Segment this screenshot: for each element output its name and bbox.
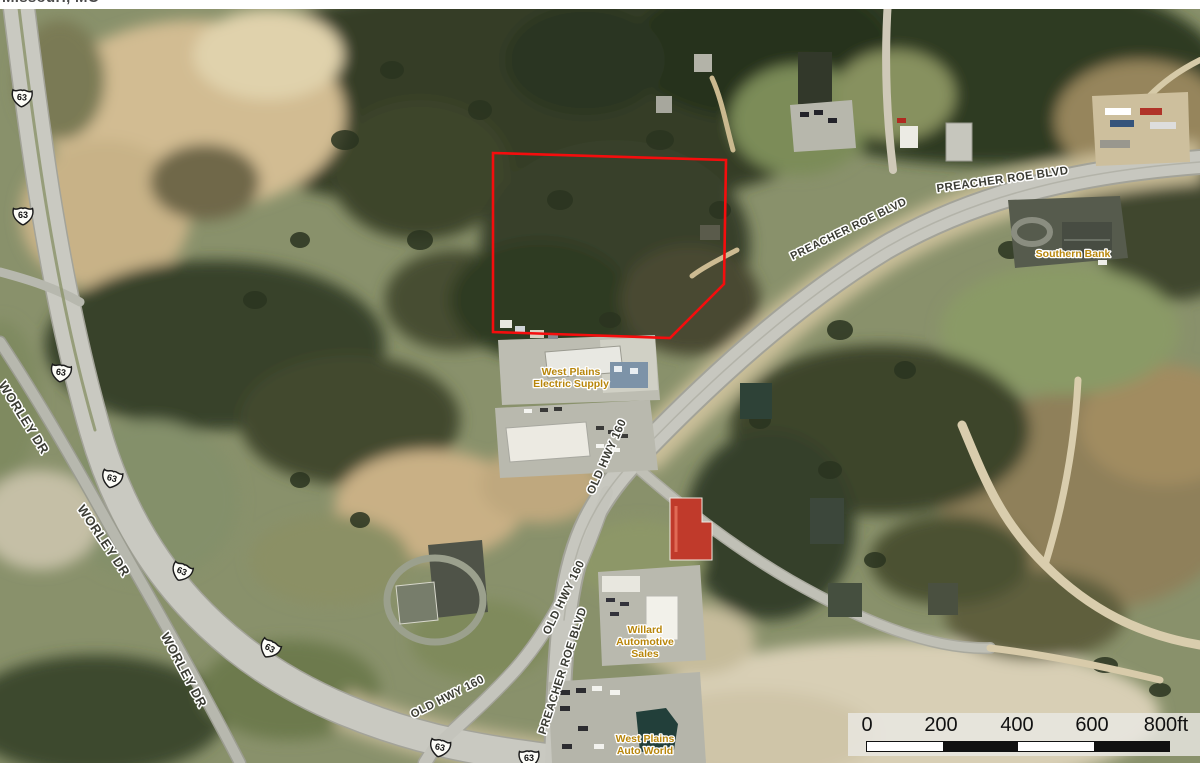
svg-text:63: 63 [17, 92, 28, 103]
house-roof [798, 52, 832, 104]
warehouse-building [506, 422, 590, 462]
scale-bar-segment [867, 742, 943, 751]
scale-tick: 600 [1075, 714, 1108, 737]
cropped-header-text: Missouri, MO [0, 0, 1200, 9]
svg-text:63: 63 [434, 741, 446, 753]
scale-tick: 0 [861, 714, 872, 737]
church-building [396, 582, 438, 624]
location-text: Missouri, MO [0, 0, 1200, 6]
scale-bar-segment [943, 742, 1019, 751]
svg-text:63: 63 [18, 210, 28, 220]
business-label-west-plains-auto-world: West PlainsAuto World [616, 733, 675, 757]
aerial-map-image: 6363636363636363 PREACHER ROE BLVDPREACH… [0, 0, 1200, 763]
business-label-west-plains-electric-supply: West PlainsElectric Supply [533, 366, 609, 390]
scale-tick: 400 [1000, 714, 1033, 737]
highway-shield-63: 63 [519, 751, 539, 763]
screenshot-root: 6363636363636363 PREACHER ROE BLVDPREACH… [0, 0, 1200, 763]
svg-text:63: 63 [524, 753, 534, 763]
scale-bar-segment [1094, 742, 1170, 751]
scale-bar-segment [1018, 742, 1094, 751]
scale-tick: 200 [924, 714, 957, 737]
map-scale-bar: 0 200 400 600 800ft [848, 713, 1200, 756]
svg-text:63: 63 [55, 367, 66, 378]
business-label-southern-bank: Southern Bank [1036, 248, 1111, 260]
scale-bar-segments [866, 741, 1170, 752]
scale-tick: 800ft [1144, 714, 1188, 737]
